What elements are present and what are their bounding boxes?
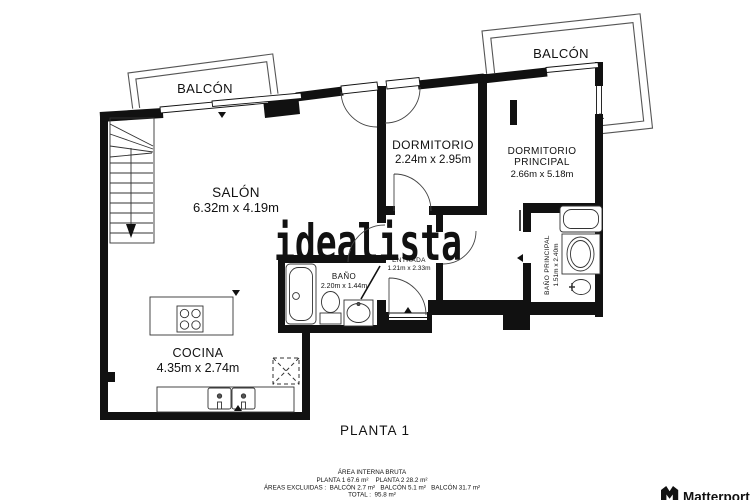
area-summary-title: ÁREA INTERNA BRUTA [338,467,407,476]
cocina-label: COCINA [172,346,223,360]
dormitorio-principal-dims: 2.66m x 5.18m [511,169,574,180]
kitchen-island [150,297,233,335]
dormitorio-label: DORMITORIO [392,138,474,152]
shower-icon [562,234,600,274]
bano-label: BAÑO [332,272,356,281]
bathtub-icon [286,264,316,324]
dormitorio-principal-label-1: DORMITORIO [508,146,577,157]
balcony-left-label: BALCÓN [177,81,233,96]
cocina-dims: 4.35m x 2.74m [157,361,240,375]
balcony-right-label: BALCÓN [533,46,589,61]
matterport-logo: Matterport [661,486,750,500]
bano-principal-label: BAÑO PRINCIPAL [542,235,551,295]
entrada-dims: 1.21m x 2.33m [388,265,431,272]
dormitorio-dims: 2.24m x 2.95m [395,154,471,166]
watermark: idealista [274,214,462,272]
area-summary-plantas: PLANTA 1 67.6 m² PLANTA 2 28.2 m² [316,477,427,484]
floor-title: PLANTA 1 [340,423,410,438]
area-summary-excluidas: ÁREAS EXCLUIDAS : BALCÓN 2.7 m² BALCÓN 5… [264,483,480,492]
area-summary-total: TOTAL : 95.8 m² [348,492,396,499]
toilet-icon [320,292,341,325]
kitchen-counter [157,387,294,412]
area-summary: ÁREA INTERNA BRUTA PLANTA 1 67.6 m² PLAN… [264,467,480,499]
matterport-m-icon [661,486,678,500]
salon-dims: 6.32m x 4.19m [193,200,279,215]
bano-principal-dims: 1.51m x 2.40m [553,244,560,287]
sink-icon [344,300,373,326]
bathtub-icon [560,206,602,232]
matterport-wordmark: Matterport [683,490,750,500]
entrada-label: ENTRADA [392,257,426,264]
dormitorio-principal-label-2: PRINCIPAL [514,157,570,168]
floor-plan-canvas: idealista [0,0,750,500]
floor-plan-page: idealista [0,0,750,500]
salon-label: SALÓN [212,185,260,200]
bano-dims: 2.20m x 1.44m [321,283,367,290]
shaft-symbol [273,358,299,384]
